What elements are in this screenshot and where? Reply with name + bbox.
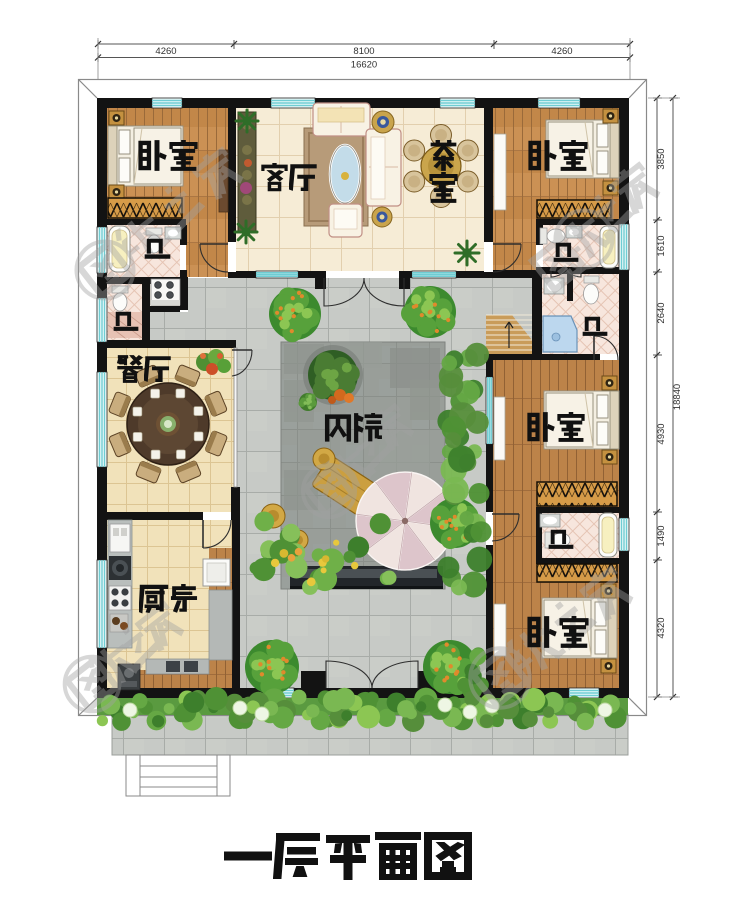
- svg-text:4260: 4260: [551, 46, 572, 57]
- svg-text:18840: 18840: [672, 384, 683, 410]
- svg-text:3850: 3850: [656, 148, 667, 169]
- svg-text:4260: 4260: [155, 46, 176, 57]
- svg-text:16620: 16620: [351, 60, 377, 71]
- svg-text:2640: 2640: [656, 302, 667, 323]
- svg-text:1490: 1490: [656, 525, 667, 546]
- svg-text:4930: 4930: [656, 423, 667, 444]
- svg-text:8100: 8100: [353, 46, 374, 57]
- svg-text:4320: 4320: [656, 617, 667, 638]
- svg-text:1610: 1610: [656, 235, 667, 256]
